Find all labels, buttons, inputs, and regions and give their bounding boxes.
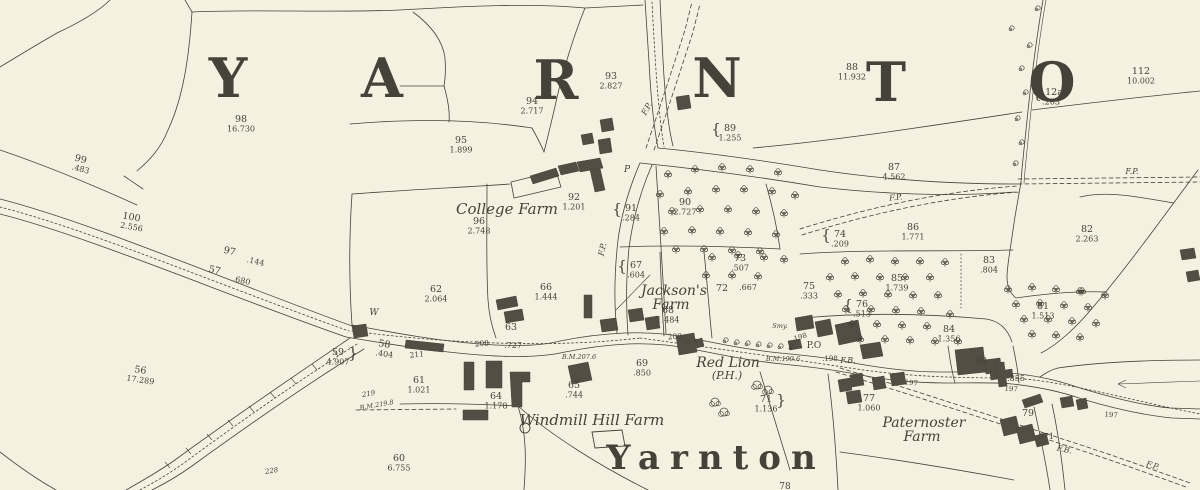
os-map-canvas: YARNTOYarntonCollege FarmJackson'sFarmRe… — [0, 0, 1200, 490]
parcel-acreage-83: .804 — [980, 266, 998, 275]
parcel-number-94: 94 — [526, 96, 538, 107]
parcel-acreage-85: 1.739 — [886, 284, 909, 293]
parcel-number-96: 96 — [473, 216, 485, 227]
parcel-acreage-81: 1.513 — [1032, 312, 1055, 321]
parcel-number-112a: 112a — [1039, 87, 1063, 98]
parcel-number-91: 91 — [625, 203, 637, 214]
parcel-acreage-60: 6.755 — [388, 464, 411, 473]
parcel-acreage-66: 1.444 — [535, 293, 558, 302]
parcel-acreage-76: .513 — [853, 310, 871, 319]
parcel-number-95: 95 — [455, 135, 467, 146]
parcel-number-69: 69 — [636, 358, 648, 369]
parcel-number-90: 90 — [679, 197, 691, 208]
parcel-acreage-93: 2.827 — [600, 82, 623, 91]
district-name-letter: T — [866, 50, 906, 114]
annotation-197: 197 — [1004, 385, 1018, 394]
parcel-number-65: 65 — [568, 380, 580, 391]
parcel-acreage-63: .727 — [504, 341, 522, 350]
parcel-acreage-68: 1.484 — [657, 316, 680, 325]
annotation-p: P — [623, 165, 631, 175]
parcel-acreage-87: 4.562 — [883, 173, 906, 182]
parcel-acreage-92: 1.201 — [563, 203, 586, 212]
parcel-number-64: 64 — [490, 391, 502, 402]
parcel-acreage-65: .744 — [565, 391, 583, 400]
parcel-number-76: 76 — [856, 299, 868, 310]
parcel-number-71: 71 — [760, 394, 772, 405]
annotation-fb: F.B. — [839, 356, 855, 365]
parcel-number-61: 61 — [413, 375, 425, 386]
parcel-number-92: 92 — [568, 192, 580, 203]
annotation-smy: Smy. — [772, 322, 788, 330]
place-name-label: Windmill Hill Farm — [520, 411, 665, 429]
annotation-198: .198 — [822, 355, 838, 363]
parcel-number-85: 85 — [891, 273, 903, 284]
annotation-fp: F.P. — [888, 192, 903, 202]
district-name-letter: Y — [208, 46, 249, 110]
place-name-label: Farm — [902, 429, 940, 445]
annotation-197: 197 — [1104, 411, 1118, 420]
parcel-number-79: 79 — [1022, 408, 1034, 419]
parcel-acreage-69: .850 — [633, 369, 651, 378]
parcel-number-74: 74 — [834, 229, 846, 240]
parcel-number-67: 67 — [630, 260, 642, 271]
parcel-acreage-59: 4.907 — [327, 358, 350, 367]
parcel-number-82: 82 — [1081, 224, 1093, 235]
place-name-label: College Farm — [456, 200, 558, 218]
parcel-bracket: { — [843, 296, 853, 314]
parcel-acreage-82: 2.263 — [1076, 235, 1099, 244]
parcel-acreage-67: .604 — [627, 271, 645, 280]
annotation-211: 211 — [409, 349, 424, 359]
district-name-letter: N — [692, 46, 741, 110]
parcel-acreage-88: 11.932 — [838, 73, 866, 82]
parcel-bracket: { — [821, 226, 831, 244]
parcel-bracket: { — [617, 257, 627, 275]
parcel-acreage-94: 2.717 — [521, 107, 544, 116]
district-name-letter: R — [534, 48, 580, 112]
parcel-number-88: 88 — [846, 62, 858, 73]
parcel-acreage-112a: .263 — [1042, 98, 1060, 107]
parcel-acreage-64: 1.178 — [485, 402, 508, 411]
annotation-w: W — [369, 308, 379, 318]
parcel-bracket: } — [348, 344, 358, 362]
parcel-number-59: 59 — [332, 347, 344, 358]
parcel-number-87: 87 — [888, 162, 900, 173]
annotation-208: 208 — [474, 339, 489, 349]
parcel-number-63: 63 — [505, 322, 517, 333]
parcel-bracket: } — [776, 391, 786, 409]
annotation-197: 197 — [904, 378, 918, 387]
parcel-number-98: 98 — [235, 114, 247, 125]
parcel-number-93: 93 — [605, 71, 617, 82]
parcel-acreage-61: 1.021 — [408, 386, 431, 395]
parcel-acreage-95: 1.899 — [450, 146, 473, 155]
parcel-number-77: 77 — [863, 393, 875, 404]
parcel-acreage-77: 1.060 — [858, 404, 881, 413]
annotation-78: 78 — [779, 482, 791, 490]
parcel-acreage-62: 2.064 — [425, 295, 448, 304]
parcel-number-81: 81 — [1037, 301, 1049, 312]
parcel-number-75: 75 — [803, 281, 815, 292]
parcel-number-68: 68 — [662, 305, 674, 316]
place-name-label: (P.H.) — [712, 369, 742, 382]
annotation-200: 200 — [667, 332, 682, 342]
parcel-acreage-79: .871 — [1036, 432, 1054, 441]
parcel-acreage-90: 2.727 — [674, 208, 697, 217]
parcel-acreage-86: 1.771 — [902, 233, 925, 242]
parcel-bracket: { — [711, 120, 721, 138]
parcel-bracket: { — [612, 200, 622, 218]
parcel-acreage-80: .855 — [1007, 374, 1025, 383]
parcel-acreage-73: .507 — [731, 264, 749, 273]
parcel-number-60: 60 — [393, 453, 405, 464]
parcel-acreage-84: 1.356 — [938, 335, 961, 344]
parcel-acreage-91: .284 — [622, 214, 640, 223]
parcel-acreage-74: .209 — [831, 240, 849, 249]
parcel-number-66: 66 — [540, 282, 552, 293]
parcel-number-62: 62 — [430, 284, 442, 295]
parcel-acreage-75: .333 — [800, 292, 818, 301]
parcel-number-80: 80 — [975, 356, 987, 367]
parcel-number-83: 83 — [983, 255, 995, 266]
parcel-number-72: 72 — [716, 283, 728, 294]
parcel-acreage-98: 16.730 — [227, 125, 255, 134]
village-name-label: Yarnton — [605, 438, 825, 478]
parcel-acreage-71: 1.136 — [755, 405, 778, 414]
parcel-number-73: 73 — [734, 253, 746, 264]
annotation-bm2076: B.M.207.6 — [561, 353, 596, 361]
parcel-acreage-96: 2.748 — [468, 227, 491, 236]
parcel-number-86: 86 — [907, 222, 919, 233]
parcel-number-84: 84 — [943, 324, 955, 335]
parcel-acreage-89: 1.255 — [719, 134, 742, 143]
annotation-po: P.O — [807, 341, 821, 351]
parcel-number-89: 89 — [724, 123, 736, 134]
parcel-bracket: { — [1032, 84, 1042, 102]
parcel-acreage-112: 10.002 — [1127, 77, 1155, 86]
district-name-letter: A — [360, 46, 404, 110]
parcel-number-112: 112 — [1132, 66, 1150, 77]
annotation-fp: F.P. — [1124, 167, 1138, 176]
parcel-acreage-72: .667 — [739, 283, 757, 292]
annotation-bm1996: B.M.199.6 — [765, 355, 800, 363]
